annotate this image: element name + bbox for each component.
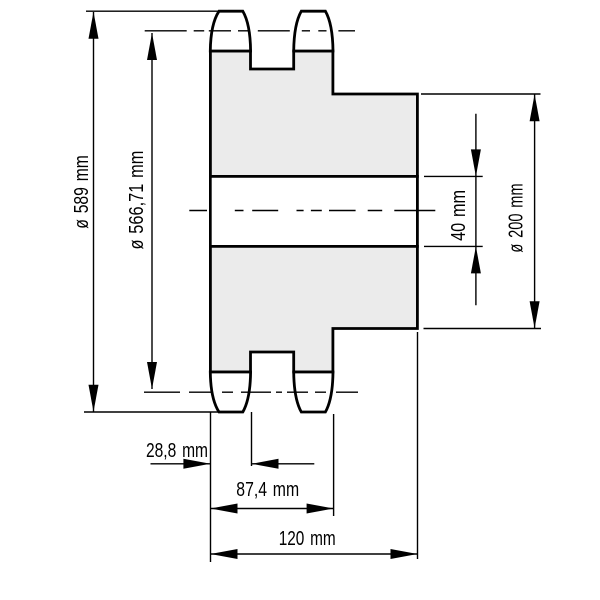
svg-text:ø: ø bbox=[71, 219, 93, 229]
svg-text:ø: ø bbox=[126, 240, 148, 250]
svg-text:mm: mm bbox=[71, 155, 93, 181]
svg-text:87,4: 87,4 bbox=[236, 479, 267, 501]
svg-text:mm: mm bbox=[126, 151, 148, 178]
svg-text:120: 120 bbox=[279, 528, 305, 550]
svg-text:mm: mm bbox=[273, 479, 299, 501]
svg-text:mm: mm bbox=[448, 190, 470, 217]
svg-text:mm: mm bbox=[505, 183, 527, 207]
svg-text:28,8: 28,8 bbox=[146, 440, 176, 462]
svg-text:mm: mm bbox=[310, 528, 336, 550]
svg-text:mm: mm bbox=[182, 440, 208, 462]
svg-text:589: 589 bbox=[71, 187, 93, 213]
svg-text:40: 40 bbox=[448, 223, 470, 241]
svg-text:200: 200 bbox=[505, 214, 527, 238]
svg-text:566,71: 566,71 bbox=[126, 184, 148, 234]
svg-text:ø: ø bbox=[505, 244, 527, 253]
